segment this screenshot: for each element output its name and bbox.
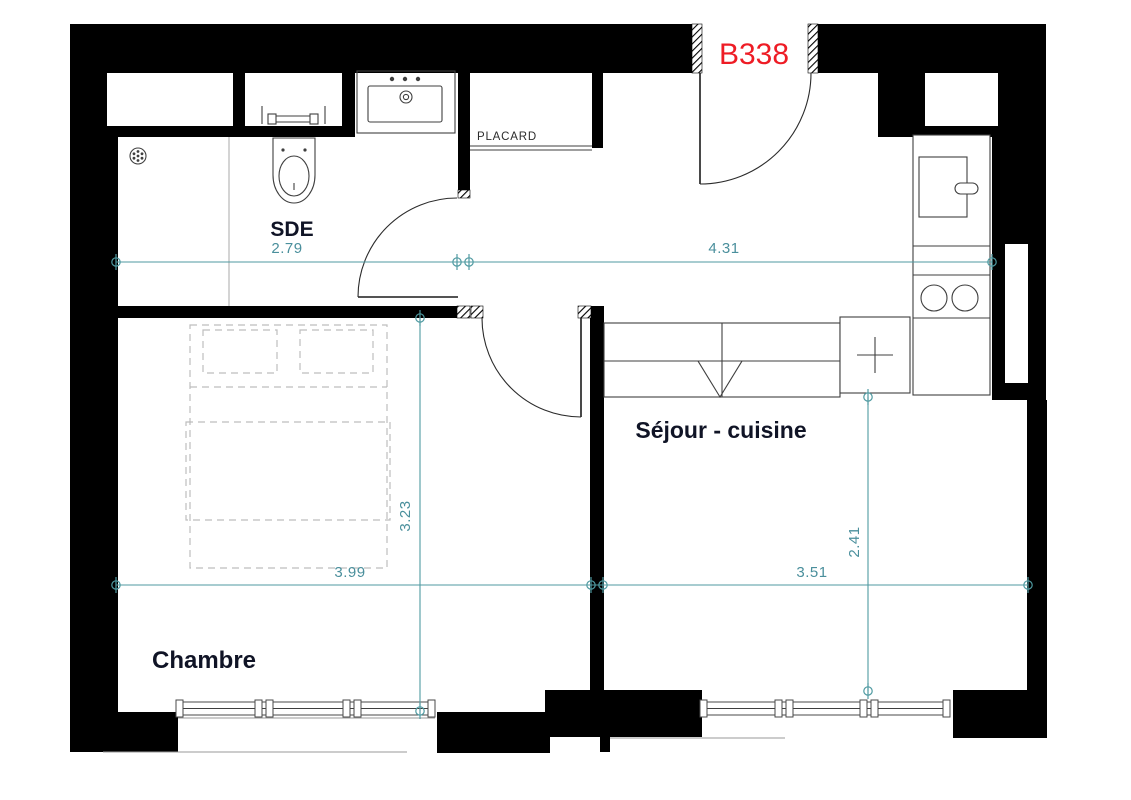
dim-sejour-width: 3.51: [796, 564, 827, 581]
kitchen-counter: [604, 323, 840, 397]
floor-plan: 2.79 4.31 3.99 3.51 3.23 2.41 B338 SDE P…: [0, 0, 1131, 800]
pillow-left: [203, 330, 277, 373]
pillow-right: [300, 330, 373, 373]
bedroom-door-swing: [482, 318, 581, 417]
bed-icon: [186, 325, 390, 568]
unit-number-label: B338: [719, 38, 789, 71]
entrance-door-swing: [700, 73, 811, 184]
drainer-triangle: [698, 361, 742, 397]
dimension-line-chambre-depth: 3.23: [397, 310, 424, 719]
room-label-chambre: Chambre: [152, 647, 256, 674]
dimension-line-upper: 2.79 4.31: [112, 240, 996, 270]
washbasin-icon: [357, 71, 455, 133]
toilet-icon: [262, 106, 325, 203]
sde-door-swing: [358, 198, 458, 297]
room-label-sejour: Séjour - cuisine: [635, 417, 806, 443]
dim-chambre-depth: 3.23: [397, 500, 414, 531]
floor-plan-drawing: 2.79 4.31 3.99 3.51 3.23 2.41 B338 SDE P…: [0, 0, 1131, 800]
room-label-sde: SDE: [270, 218, 313, 241]
dim-chambre-width: 3.99: [334, 564, 365, 581]
dimension-line-sejour-depth: 2.41: [846, 389, 872, 699]
dim-sde-width: 2.79: [271, 240, 302, 257]
shower-drain-icon: [130, 148, 146, 164]
interior-walls: [118, 73, 604, 690]
room-label-placard: PLACARD: [477, 131, 537, 143]
duvet: [186, 422, 390, 520]
dim-entry-width: 4.31: [708, 240, 739, 257]
closet-front: [470, 146, 592, 150]
kitchen-sink-icon: [840, 317, 910, 393]
dim-sejour-depth: 2.41: [846, 526, 863, 557]
